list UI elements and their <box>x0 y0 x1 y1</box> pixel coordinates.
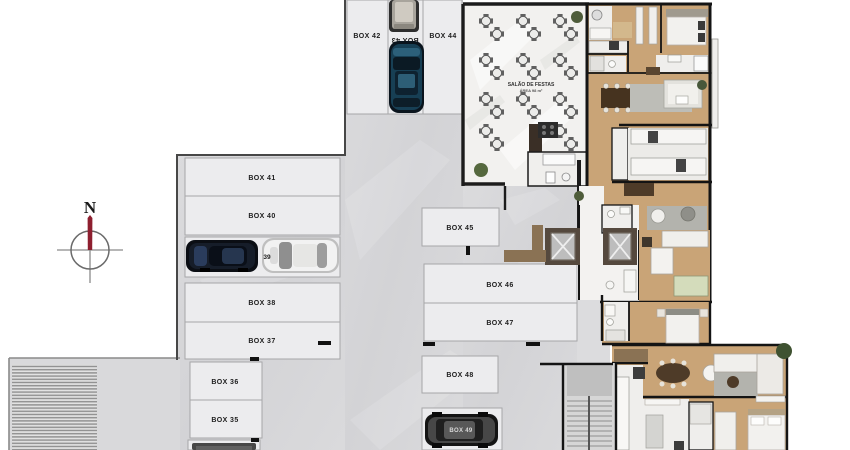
svg-text:BOX 37: BOX 37 <box>248 338 275 345</box>
svg-text:BOX 35: BOX 35 <box>211 417 238 424</box>
svg-text:BOX 44: BOX 44 <box>429 33 456 40</box>
svg-text:BOX 38: BOX 38 <box>248 300 275 307</box>
svg-text:BOX 47: BOX 47 <box>486 320 513 327</box>
svg-text:BOX 41: BOX 41 <box>248 175 275 182</box>
svg-text:BOX 49: BOX 49 <box>449 428 473 434</box>
svg-text:BOX 40: BOX 40 <box>248 213 275 220</box>
svg-text:BOX 36: BOX 36 <box>211 379 238 386</box>
svg-text:ÁREA 98 m²: ÁREA 98 m² <box>520 88 543 93</box>
svg-text:BOX 45: BOX 45 <box>446 225 473 232</box>
svg-text:SALÃO DE FESTAS: SALÃO DE FESTAS <box>508 81 555 88</box>
svg-text:BOX 48: BOX 48 <box>446 372 473 379</box>
svg-text:BOX 42: BOX 42 <box>353 33 380 40</box>
svg-text:BOX 46: BOX 46 <box>486 282 513 289</box>
svg-text:N: N <box>84 198 97 217</box>
svg-text:39: 39 <box>263 254 271 261</box>
